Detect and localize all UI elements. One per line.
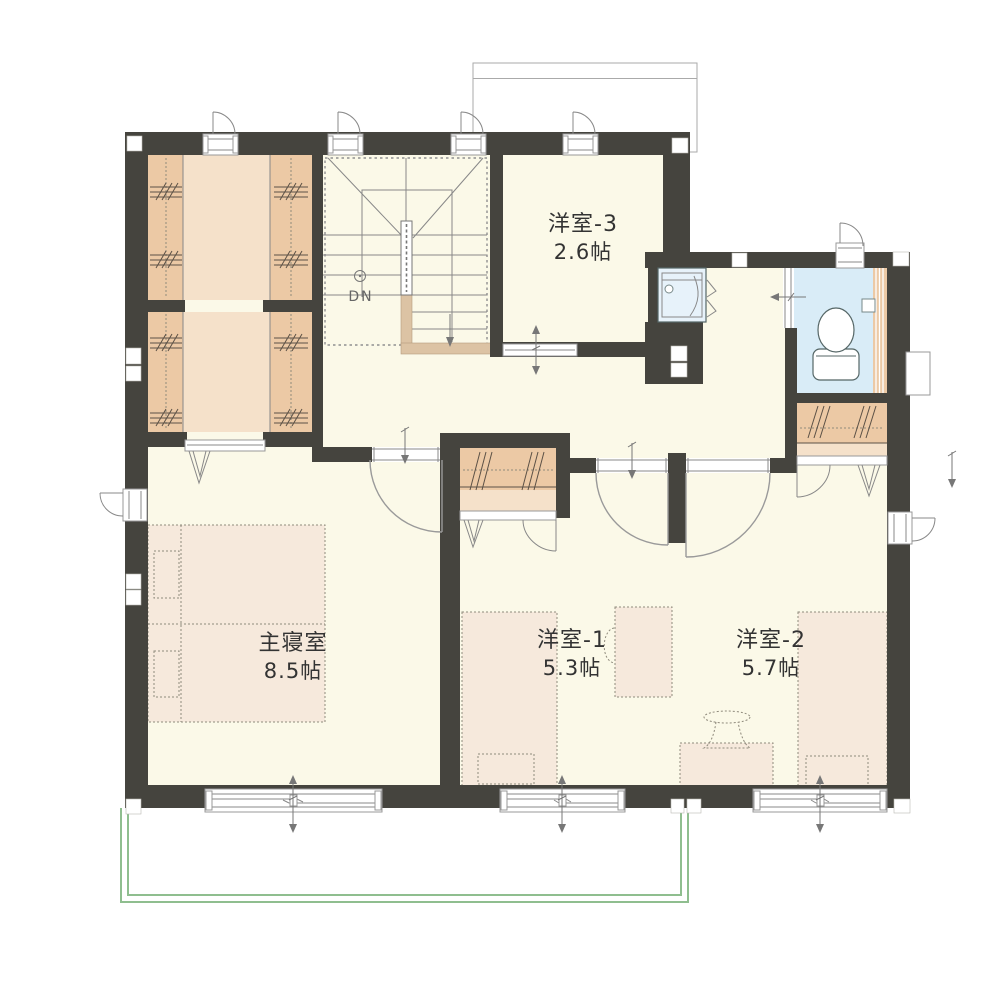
casement-window-icon (328, 112, 363, 155)
room2-name-label: 洋室-2 (736, 628, 806, 653)
master-name-label: 主寝室 (258, 631, 327, 656)
pillow (478, 754, 534, 784)
toilet-remote (862, 299, 875, 312)
room2-bed (798, 612, 887, 788)
right-casement-window (888, 512, 935, 544)
floor-plan-drawing: DN (0, 0, 1000, 1000)
toilet-sliding-door (783, 268, 794, 328)
room3-name-label: 洋室-3 (548, 212, 618, 237)
pillow (154, 651, 179, 697)
casement-window-icon (203, 112, 238, 155)
master-size-label: 8.5帖 (264, 659, 322, 683)
room2-closet (797, 403, 887, 458)
room3-size-label: 2.6帖 (554, 240, 612, 264)
room2-size-label: 5.7帖 (742, 656, 800, 680)
floor-plan-page: DN (0, 0, 1000, 1000)
room2-desk (680, 743, 773, 788)
master-bed (148, 525, 325, 722)
toilet-top-window (836, 223, 864, 268)
stairs-dn-label: DN (348, 289, 373, 305)
room1-name-label: 洋室-1 (537, 628, 607, 653)
toilet-side-window (906, 352, 930, 395)
pillow (806, 756, 868, 786)
room3-sliding-door (503, 344, 577, 356)
room1-desk (615, 607, 672, 697)
pillow (154, 551, 179, 598)
walk-in-closet (148, 155, 312, 432)
left-casement-window (100, 489, 147, 521)
bottom-sliding-windows (205, 789, 887, 812)
room1-size-label: 5.3帖 (543, 656, 601, 680)
room1-closet (460, 448, 556, 513)
balcony (121, 808, 688, 902)
